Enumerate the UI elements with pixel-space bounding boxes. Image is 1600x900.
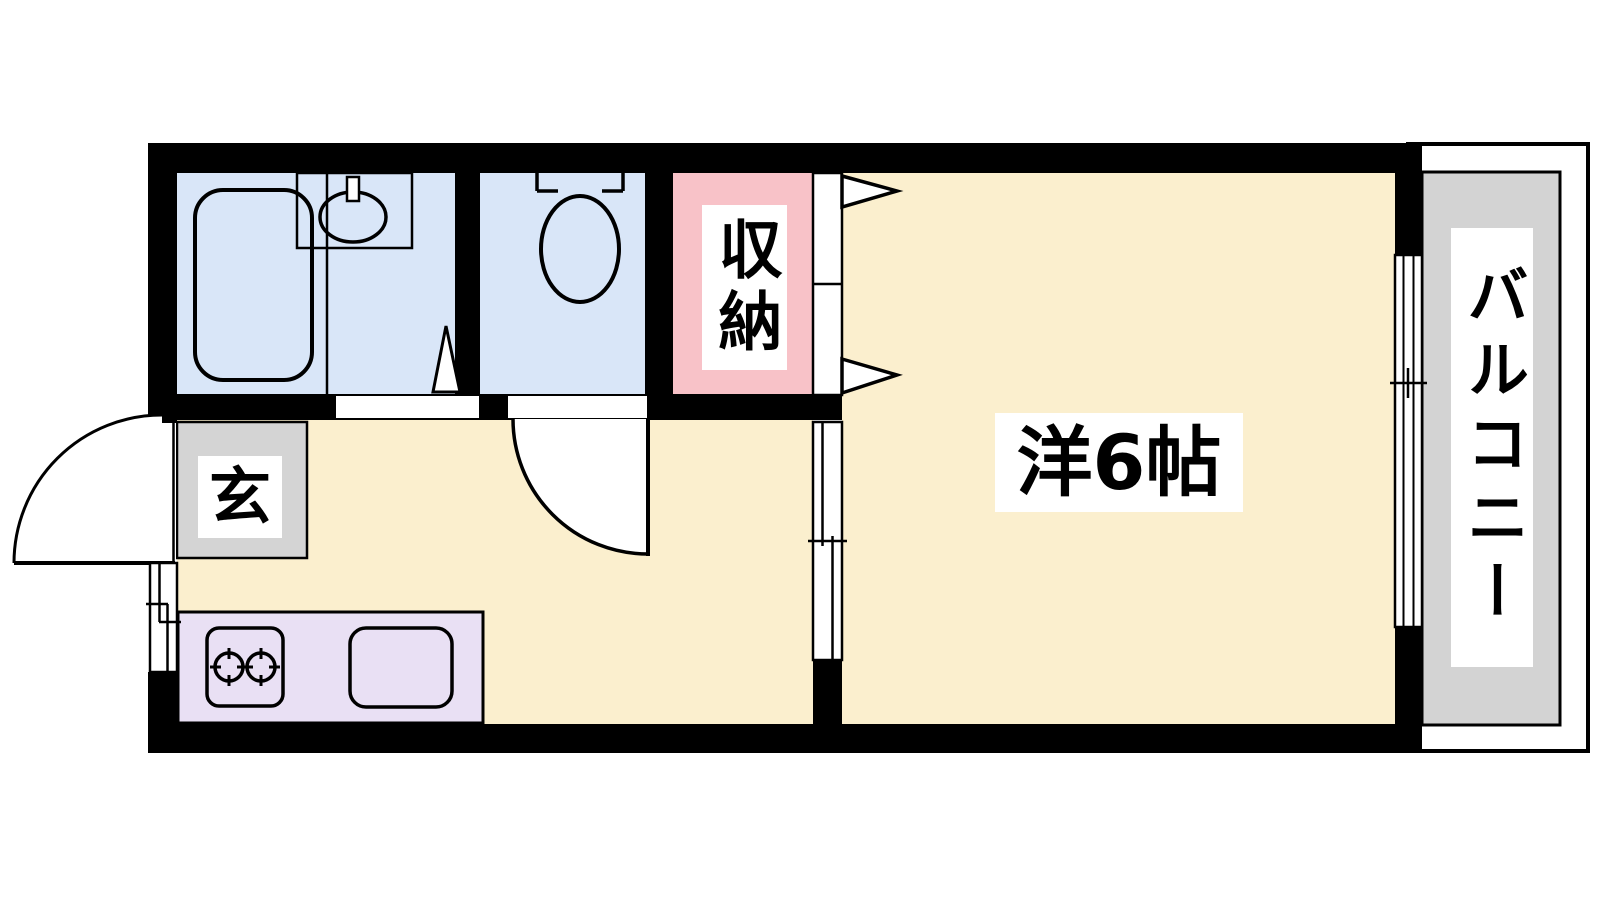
western-room-label: 洋6帖 — [995, 413, 1243, 512]
wall-right-lower — [1395, 627, 1422, 753]
basin-tap — [347, 177, 359, 201]
wall-left-upper — [148, 143, 177, 423]
toilet-floor — [480, 173, 645, 394]
storage-label: 収納 — [702, 205, 787, 370]
wall-interior-h3 — [648, 394, 842, 420]
wall-right-upper — [1395, 143, 1422, 255]
washroom-floor — [177, 173, 455, 394]
entrance-door-swing-area — [14, 415, 162, 563]
wall-top — [148, 143, 1420, 173]
wall-interior-h2 — [480, 394, 507, 420]
wall-toilet-left — [455, 173, 480, 394]
entrance-label: 玄 — [198, 456, 282, 538]
balcony-window — [1390, 255, 1427, 627]
wall-interior-h1 — [177, 394, 335, 420]
wall-bottom — [148, 724, 1420, 753]
wall-toilet-right — [645, 173, 673, 394]
room-sliding-door — [808, 422, 847, 660]
entrance-door — [14, 415, 176, 563]
floor-plan: 玄 収納 洋6帖 バルコニー — [0, 0, 1600, 900]
balcony-label: バルコニー — [1451, 228, 1533, 667]
wall-interior-v-lower — [813, 660, 842, 724]
kitchen-window — [146, 563, 181, 672]
